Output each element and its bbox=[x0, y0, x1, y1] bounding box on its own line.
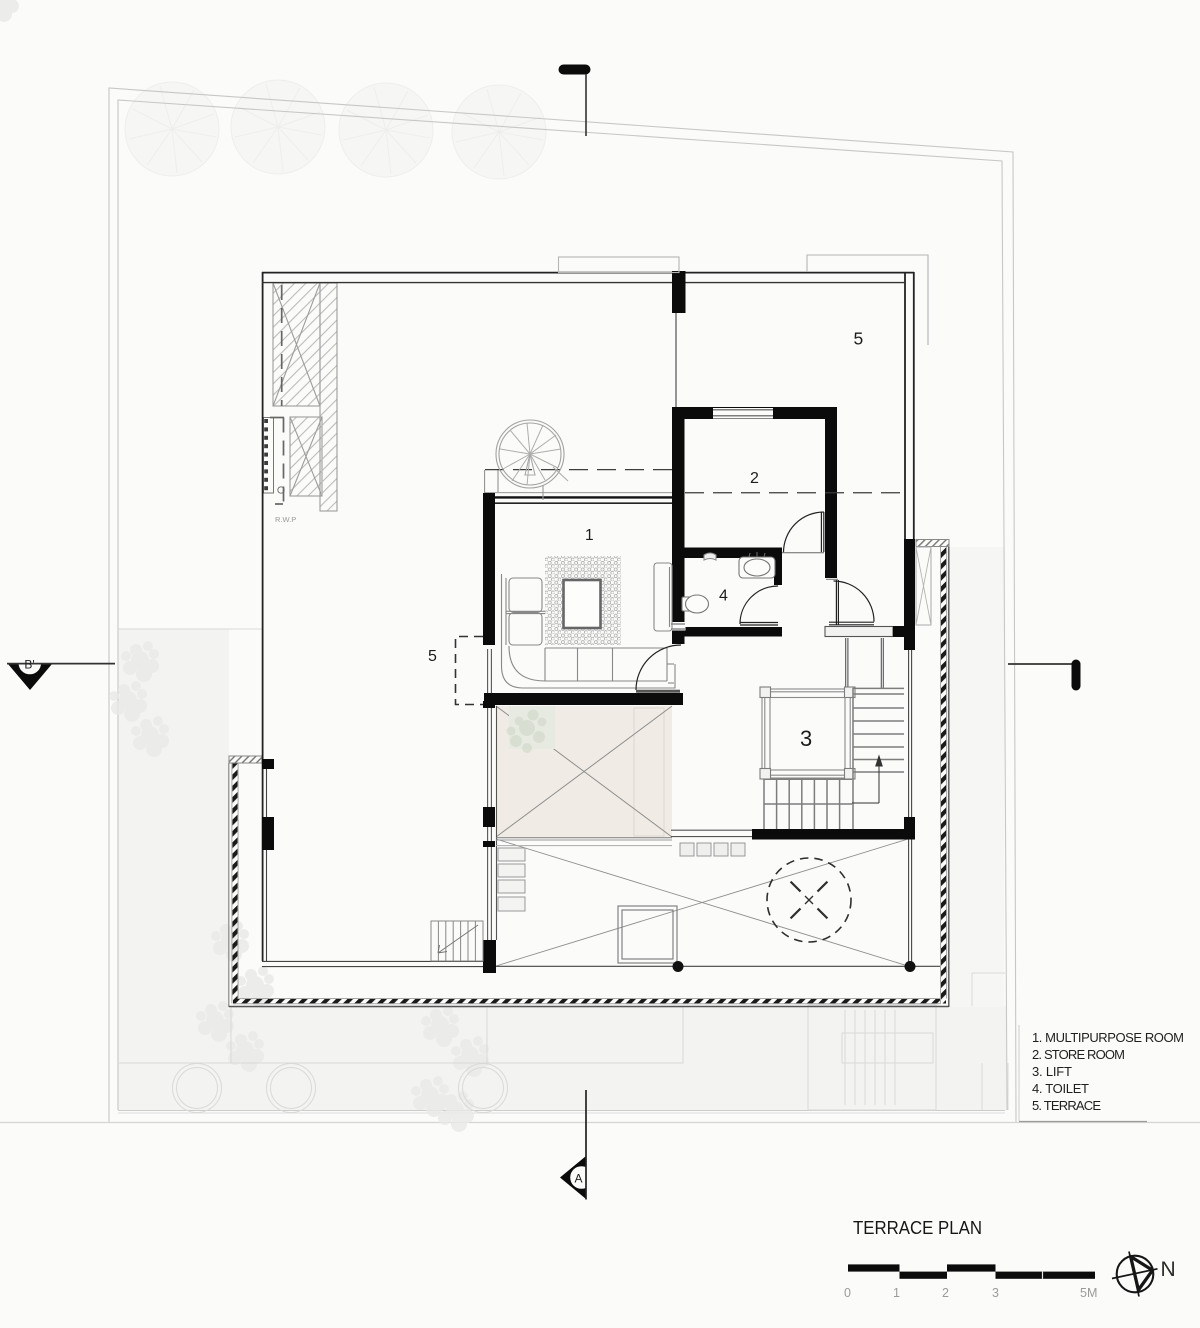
svg-text:5. TERRACE: 5. TERRACE bbox=[1032, 1098, 1101, 1113]
svg-text:5: 5 bbox=[428, 648, 437, 665]
svg-text:R.W.P: R.W.P bbox=[275, 515, 296, 524]
svg-text:2: 2 bbox=[942, 1286, 949, 1300]
svg-text:1. MULTIPURPOSE ROOM: 1. MULTIPURPOSE ROOM bbox=[1032, 1030, 1184, 1045]
svg-text:4. TOILET: 4. TOILET bbox=[1032, 1081, 1089, 1096]
svg-text:N: N bbox=[1161, 1258, 1176, 1281]
svg-text:TERRACE PLAN: TERRACE PLAN bbox=[853, 1218, 982, 1238]
svg-text:2. STORE ROOM: 2. STORE ROOM bbox=[1032, 1047, 1125, 1062]
svg-text:B': B' bbox=[24, 657, 34, 671]
svg-text:1: 1 bbox=[585, 527, 594, 544]
svg-text:2: 2 bbox=[750, 470, 759, 487]
svg-text:3. LIFT: 3. LIFT bbox=[1032, 1064, 1072, 1079]
svg-text:5: 5 bbox=[854, 329, 864, 349]
svg-text:3: 3 bbox=[992, 1286, 999, 1300]
svg-text:5M: 5M bbox=[1080, 1286, 1097, 1300]
svg-text:0: 0 bbox=[844, 1286, 851, 1300]
svg-text:A: A bbox=[574, 1171, 582, 1185]
svg-text:4: 4 bbox=[719, 588, 728, 605]
svg-text:1: 1 bbox=[893, 1286, 900, 1300]
svg-text:3: 3 bbox=[800, 726, 812, 751]
